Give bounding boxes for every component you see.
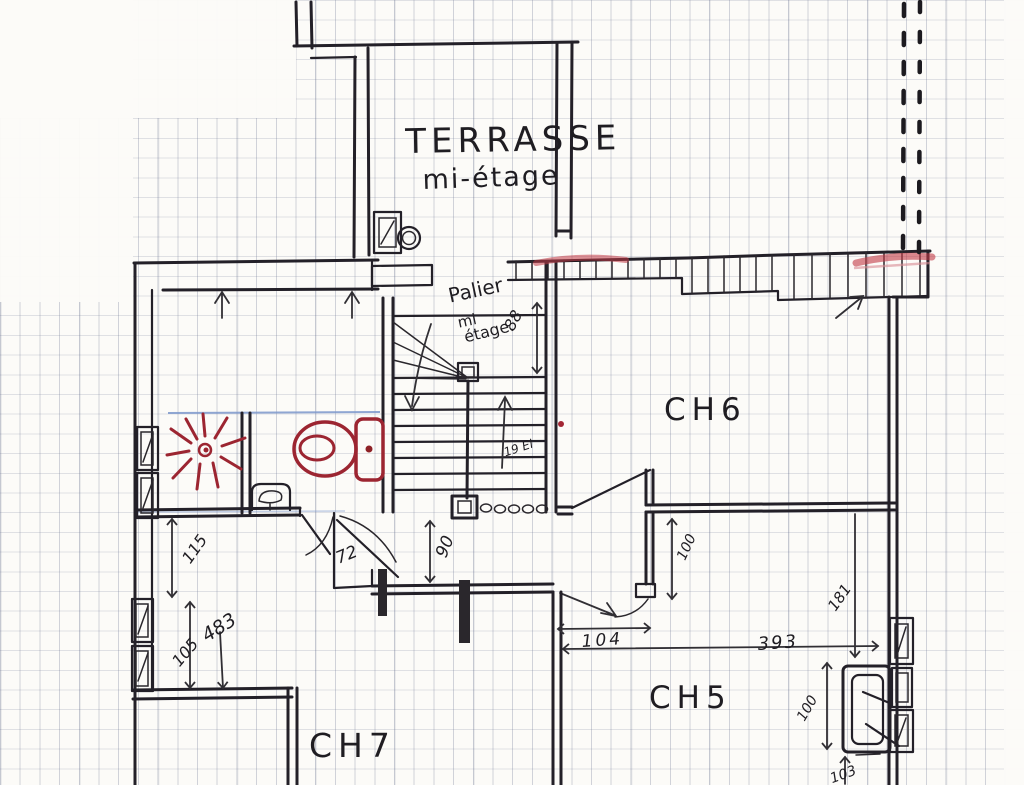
window-icon [137, 427, 158, 470]
shower-starburst-icon [167, 414, 245, 489]
inner-walls-doors [133, 470, 895, 785]
dimension-lines [172, 303, 878, 784]
pencil-blue-line [168, 412, 380, 413]
window-icon [892, 668, 912, 707]
dim-label-104: 104 [581, 629, 624, 652]
window-icon [890, 710, 913, 752]
room-label-ch6: CH6 [664, 392, 747, 428]
door-jamb [459, 580, 470, 643]
dashed-lines [903, 2, 920, 252]
door-jamb [378, 569, 387, 616]
room-label-ch5: CH5 [649, 680, 732, 716]
window-icon [890, 618, 913, 664]
up-arrow-icon [345, 292, 359, 318]
floor-plan-drawing [0, 0, 1024, 785]
furniture-windows [843, 618, 913, 755]
newel-post [452, 496, 477, 518]
red-fixtures [167, 256, 932, 489]
floor-plan-page: TERRASSE mi-étage Palier mi étage. CH6 C… [0, 0, 1024, 785]
stairs-down-arrow-icon [405, 324, 431, 410]
up-arrow-icon [215, 292, 229, 318]
room-label-terrasse-level: mi-étage [422, 160, 560, 196]
door-swing-arrow [560, 593, 616, 616]
red-mark [558, 421, 564, 427]
room-label-terrasse: TERRASSE [405, 118, 622, 162]
room-label-ch7: CH7 [309, 726, 396, 765]
dim-label-393: 393 [757, 631, 799, 655]
sink-icon [252, 484, 290, 510]
door-leaf [572, 470, 650, 508]
